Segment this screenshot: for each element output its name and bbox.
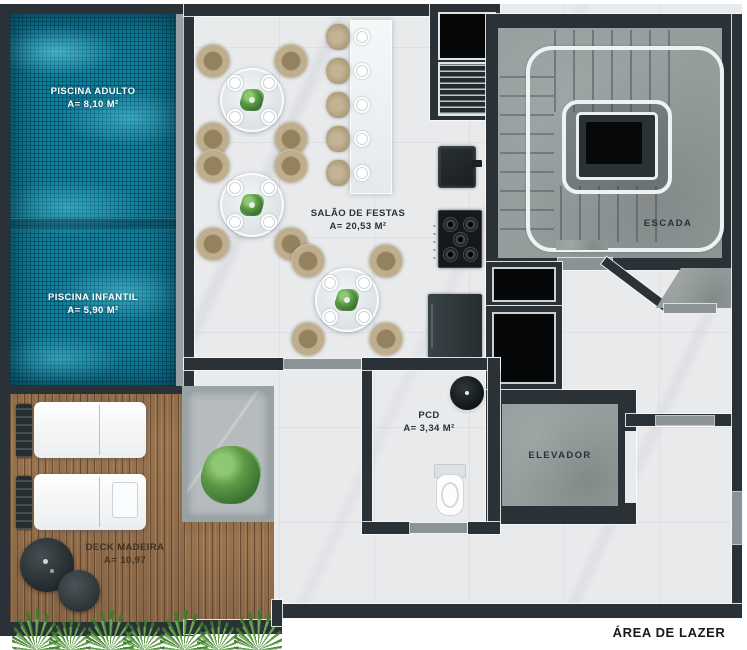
place-setting xyxy=(354,63,370,79)
plate xyxy=(356,275,372,291)
stove-burner xyxy=(463,247,478,262)
bar-stool xyxy=(326,92,350,118)
landing-threshold xyxy=(664,304,716,313)
room-name: PISCINA INFANTIL xyxy=(16,292,170,305)
sunbed-lounger xyxy=(34,474,146,530)
handrail-gap xyxy=(556,240,608,250)
label-piscina-infantil: PISCINA INFANTIL A= 5,90 M² xyxy=(16,292,170,317)
room-name: PISCINA ADULTO xyxy=(16,86,170,99)
pcd-bottom-wall xyxy=(362,522,410,534)
planter-plant xyxy=(202,446,260,504)
stove-burner xyxy=(443,217,458,232)
room-area: A= 8,10 M² xyxy=(16,99,170,112)
pcd-washbasin xyxy=(450,376,484,410)
label-escada: ESCADA xyxy=(612,218,724,231)
plate xyxy=(227,180,243,196)
label-piscina-adulto: PISCINA ADULTO A= 8,10 M² xyxy=(16,86,170,111)
dining-chair xyxy=(291,244,325,278)
room-name: ELEVADOR xyxy=(502,450,618,463)
label-pcd: PCD A= 3,34 M² xyxy=(372,410,486,435)
plate xyxy=(261,75,277,91)
dining-set xyxy=(196,44,308,156)
centerpiece-plant xyxy=(336,289,358,311)
pool-water xyxy=(10,14,176,386)
elevator-door-opening xyxy=(626,432,636,502)
bar-stool xyxy=(326,58,350,84)
dining-chair xyxy=(369,244,403,278)
sunbed-lounger xyxy=(34,402,146,458)
plate xyxy=(322,275,338,291)
label-salao-festas: SALÃO DE FESTAS A= 20,53 M² xyxy=(286,208,430,233)
room-area: A= 5,90 M² xyxy=(16,305,170,318)
dining-set xyxy=(291,244,403,356)
shaft-room xyxy=(494,269,554,300)
stove-burner xyxy=(463,217,478,232)
label-deck-madeira: DECK MADEIRA A= 10,97 xyxy=(40,542,210,567)
shaft-room xyxy=(494,314,554,382)
dining-chair xyxy=(274,44,308,78)
dining-chair xyxy=(196,44,230,78)
stove-burner xyxy=(453,232,468,247)
pool-coping xyxy=(176,14,184,386)
bottom-wall xyxy=(272,604,742,618)
plate xyxy=(261,109,277,125)
plate xyxy=(322,309,338,325)
bar-stool xyxy=(326,24,350,50)
room-area: A= 10,97 xyxy=(40,555,210,568)
place-setting xyxy=(354,165,370,181)
fern-plants-row xyxy=(8,598,288,650)
plate xyxy=(261,180,277,196)
pcd-door-threshold xyxy=(410,523,468,533)
salon-door-threshold xyxy=(284,359,362,369)
dining-chair xyxy=(369,322,403,356)
sunbed-frame xyxy=(16,404,32,458)
dining-chair xyxy=(274,149,308,183)
stairwell-void xyxy=(586,122,642,164)
plate xyxy=(227,75,243,91)
dining-chair xyxy=(196,227,230,261)
room-name: PCD xyxy=(372,410,486,423)
room-name: SALÃO DE FESTAS xyxy=(286,208,430,221)
pcd-bottom-wall xyxy=(468,522,500,534)
room-area: A= 20,53 M² xyxy=(286,221,430,234)
toilet xyxy=(436,474,464,516)
stove-burner xyxy=(443,247,458,262)
counter-fridge xyxy=(428,294,482,358)
salon-bottom-wall xyxy=(184,358,284,370)
towel xyxy=(112,482,138,518)
room-name: ESCADA xyxy=(612,218,724,231)
pcd-top-wall xyxy=(362,358,500,370)
pcd-left-wall xyxy=(362,358,372,534)
cooktop xyxy=(438,210,482,268)
bar-stool xyxy=(326,126,350,152)
sunbed-frame xyxy=(16,476,32,530)
label-elevador: ELEVADOR xyxy=(502,450,618,463)
dining-chair xyxy=(291,322,325,356)
step-wall xyxy=(272,600,282,626)
place-setting xyxy=(354,97,370,113)
kitchen-sink xyxy=(438,146,476,188)
dining-chair xyxy=(196,149,230,183)
plate xyxy=(356,309,372,325)
centerpiece-plant xyxy=(241,89,263,111)
pcd-right-wall xyxy=(488,358,500,534)
corridor-threshold xyxy=(656,416,714,425)
kitchen-faucet xyxy=(472,160,482,167)
room-name: DECK MADEIRA xyxy=(40,542,210,555)
room-area: A= 3,34 M² xyxy=(372,423,486,436)
pool-divider xyxy=(10,218,176,230)
plate xyxy=(227,214,243,230)
plan-title: ÁREA DE LAZER xyxy=(596,622,742,644)
right-wall-threshold xyxy=(732,492,742,544)
place-setting xyxy=(354,29,370,45)
place-setting xyxy=(354,131,370,147)
plate xyxy=(261,214,277,230)
floor-plan: PISCINA ADULTO A= 8,10 M² PISCINA INFANT… xyxy=(0,0,747,650)
bar-stool-group xyxy=(326,24,372,194)
bar-stool xyxy=(326,160,350,186)
centerpiece-plant xyxy=(241,194,263,216)
plate xyxy=(227,109,243,125)
